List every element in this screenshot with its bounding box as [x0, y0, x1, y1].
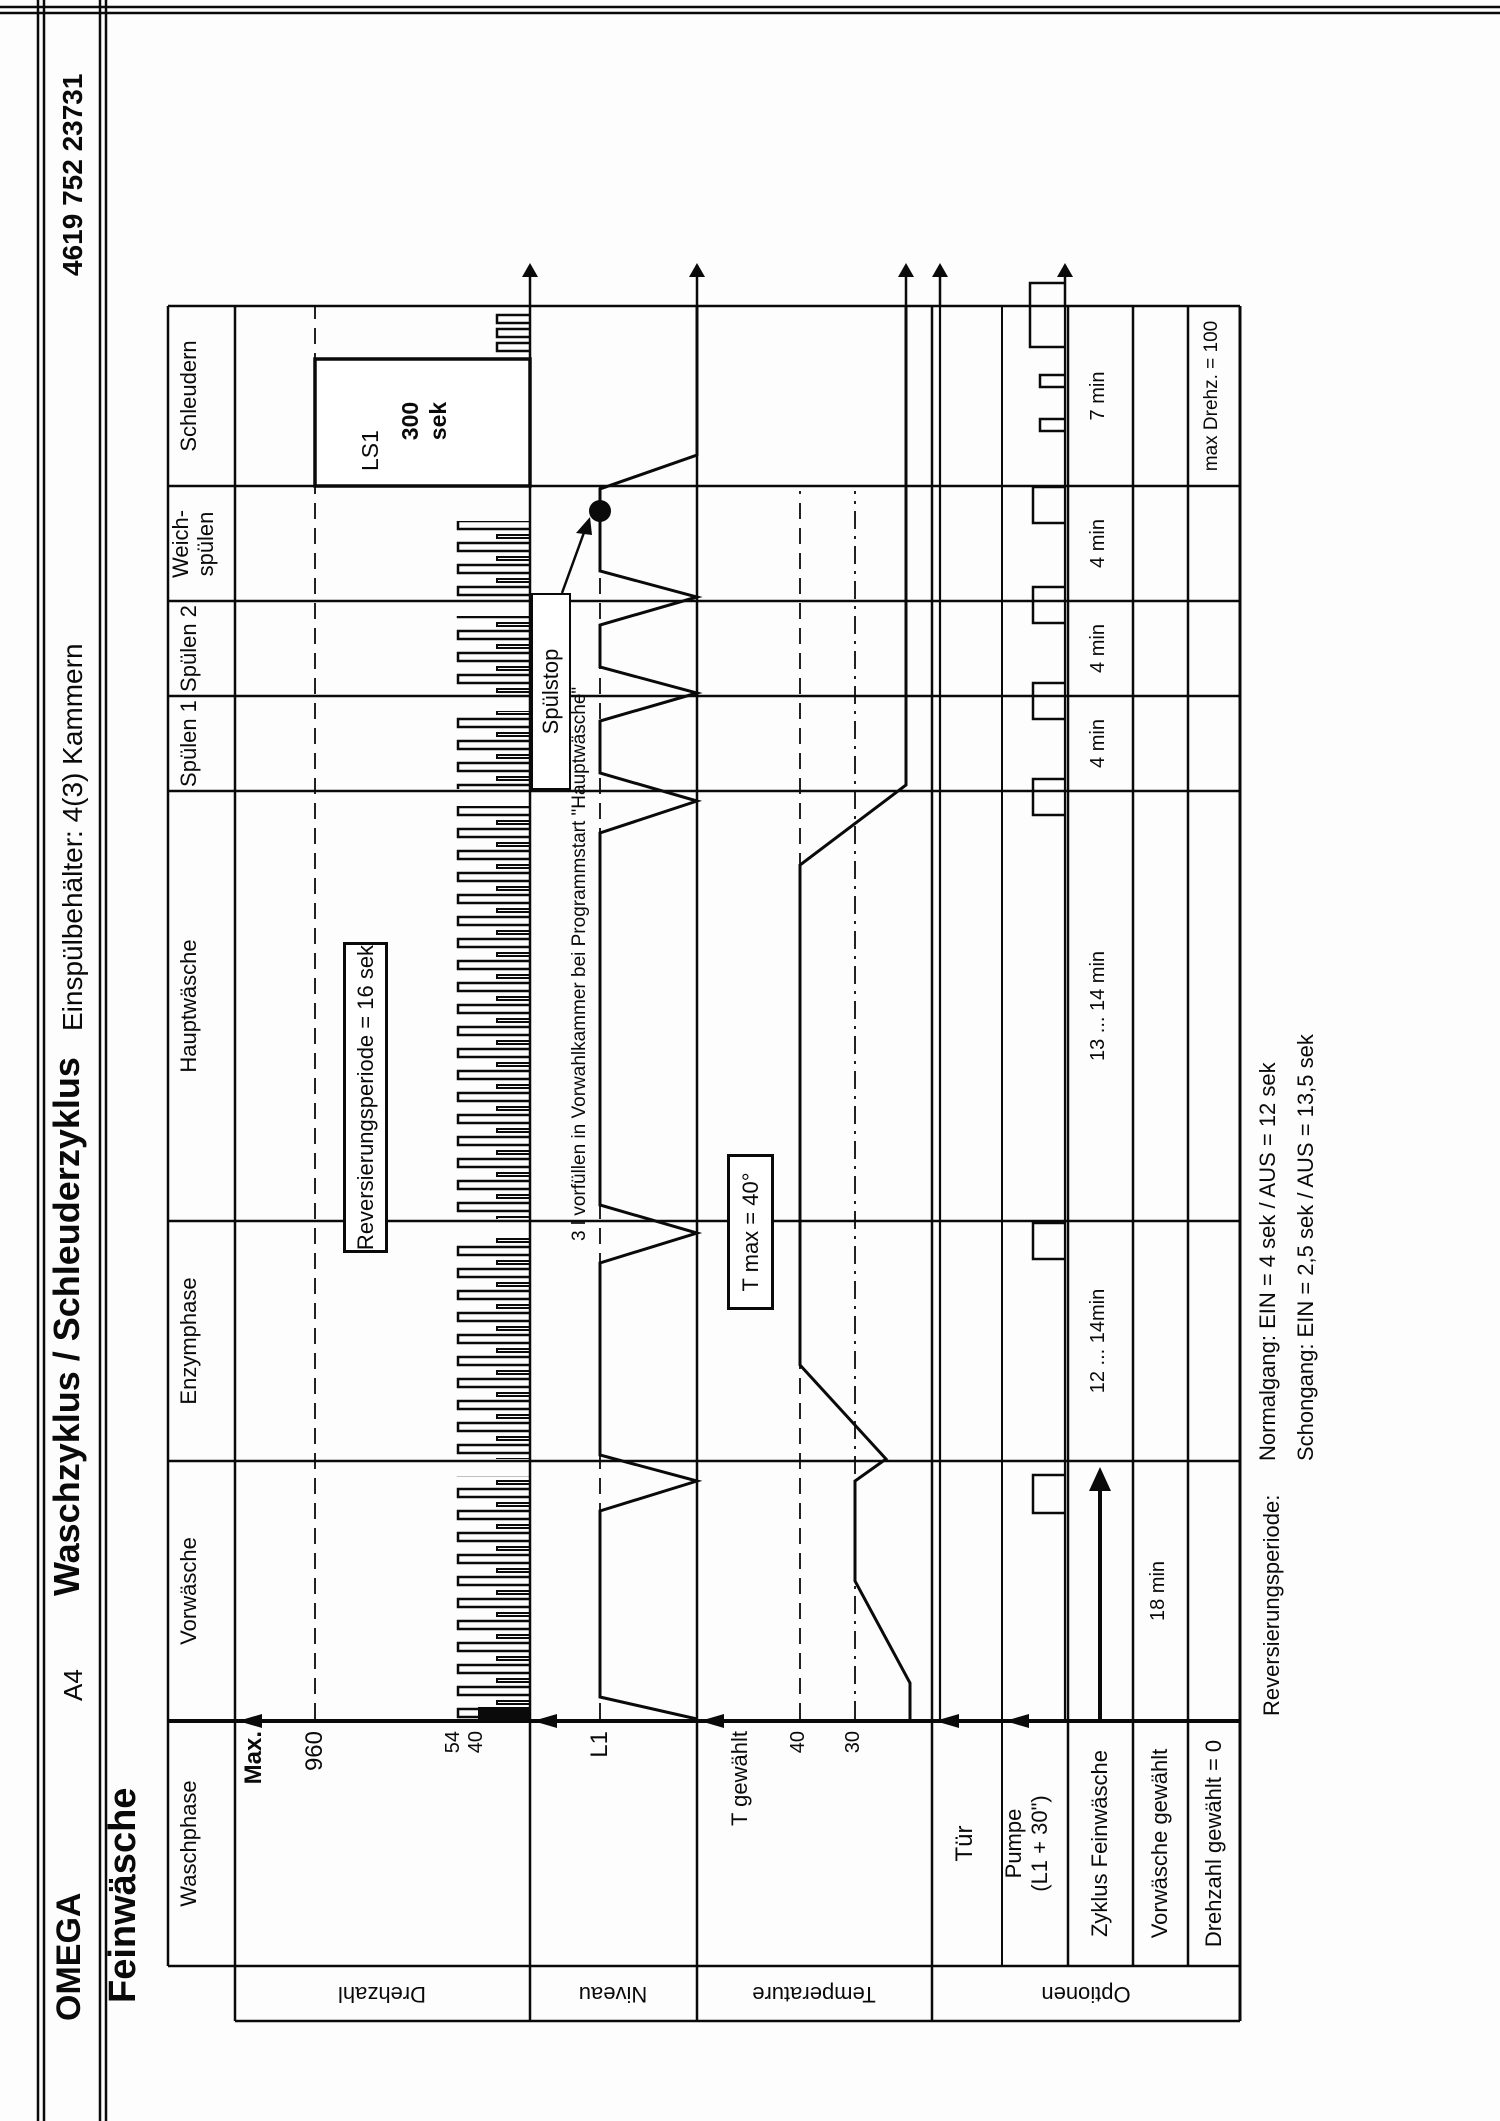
level-l1-label: L1: [587, 1731, 612, 1811]
temp-selected-label: T gewählt: [728, 1731, 751, 1871]
reversing-period-note-box: Reversierungsperiode = 16 sek: [343, 942, 388, 1253]
duration-enzymphase: 12 ... 14min: [1088, 1221, 1109, 1461]
max-spin-note: max Drehz. = 100: [1202, 306, 1222, 486]
duration-spuelen1: 4 min: [1088, 696, 1109, 791]
column-header-hauptwaesche: Hauptwäsche: [176, 791, 202, 1221]
row-label-zyklus-feinwaesche: Zyklus Feinwäsche: [1088, 1721, 1111, 1966]
column-header-waschphase: Waschphase: [176, 1721, 202, 1966]
table-grid: [168, 306, 1240, 2021]
landscape-canvas: OMEGA A4 Waschzyklus / Schleuderzyklus E…: [0, 0, 1500, 2121]
part-number: 4619 752 23731: [58, 74, 87, 276]
column-header-schleudern: Schleudern: [176, 306, 202, 486]
time-axis-arrows: [522, 263, 1073, 306]
dispenser-info: Einspülbehälter: 4(3) Kammern: [58, 643, 87, 1031]
row-group-niveau: Niveau: [579, 1981, 647, 2007]
duration-weichspuelen: 4 min: [1088, 486, 1109, 601]
agitation-pulse-train: [455, 315, 530, 1719]
row-label-vorwaesche-gewaehlt: Vorwäsche gewählt: [1148, 1721, 1171, 1966]
speed-54-label: 54: [443, 1731, 464, 1811]
sheet-format-label: A4: [60, 1669, 87, 1701]
footer-normalgang: Normalgang: EIN = 4 sek / AUS = 12 sek: [1256, 1062, 1279, 1461]
duration-hauptwaesche: 13 ... 14 min: [1088, 791, 1109, 1221]
column-header-vorwaesche: Vorwäsche: [176, 1461, 202, 1721]
document-title: Waschzyklus / Schleuderzyklus: [48, 1057, 86, 1596]
column-header-spuelen2: Spülen 2: [176, 601, 202, 696]
spuelstop-arrow: [562, 527, 586, 593]
speed-max-label: Max.: [241, 1731, 266, 1811]
column-header-weichspuelen: Weich-spülen: [168, 499, 219, 589]
speed-960-label: 960: [302, 1731, 327, 1811]
scanned-timing-diagram-page: OMEGA A4 Waschzyklus / Schleuderzyklus E…: [0, 0, 1500, 2121]
duration-vorwaesche: 18 min: [1148, 1461, 1169, 1721]
column-header-enzymphase: Enzymphase: [176, 1221, 202, 1461]
tmax-note-box: T max = 40°: [727, 1154, 774, 1310]
footer-schongang: Schongang: EIN = 2,5 sek / AUS = 13,5 se…: [1294, 1034, 1317, 1461]
speed-40-label: 40: [466, 1731, 487, 1811]
row-label-drehzahl-gewaehlt: Drehzahl gewählt = 0: [1202, 1721, 1225, 1966]
spin-step-duration-value: 300: [398, 371, 422, 471]
row-label-pumpe-detail: (L1 + 30"): [1028, 1721, 1051, 1966]
temp-40-label: 40: [788, 1731, 809, 1811]
duration-schleudern: 7 min: [1088, 306, 1109, 486]
row-group-drehzahl: Drehzahl: [338, 1981, 426, 2007]
column-header-spuelen1: Spülen 1: [176, 696, 202, 791]
temp-30-label: 30: [843, 1731, 864, 1811]
row-group-optionen: Optionen: [1041, 1981, 1130, 2007]
row-label-pumpe: Pumpe: [1002, 1721, 1025, 1966]
prefill-annotation: 3 l vorfüllen in Vorwahlkammer bei Progr…: [570, 687, 590, 1241]
footer-reversing-label: Reversierungsperiode:: [1260, 1495, 1283, 1716]
row-label-tuer: Tür: [952, 1721, 977, 1966]
brand-logo-text: OMEGA: [52, 1893, 88, 2021]
cycle-start-arrow: [1089, 1467, 1111, 1719]
spin-step-duration-unit: sek: [426, 371, 450, 471]
row-group-temperature: Temperature: [752, 1981, 876, 2007]
program-name: Feinwäsche: [104, 1788, 144, 2003]
spin-step-name: LS1: [358, 430, 382, 471]
spuelstop-note-box: Spülstop: [531, 593, 571, 790]
spuelstop-level-dot: [589, 500, 611, 522]
duration-spuelen2: 4 min: [1088, 601, 1109, 696]
